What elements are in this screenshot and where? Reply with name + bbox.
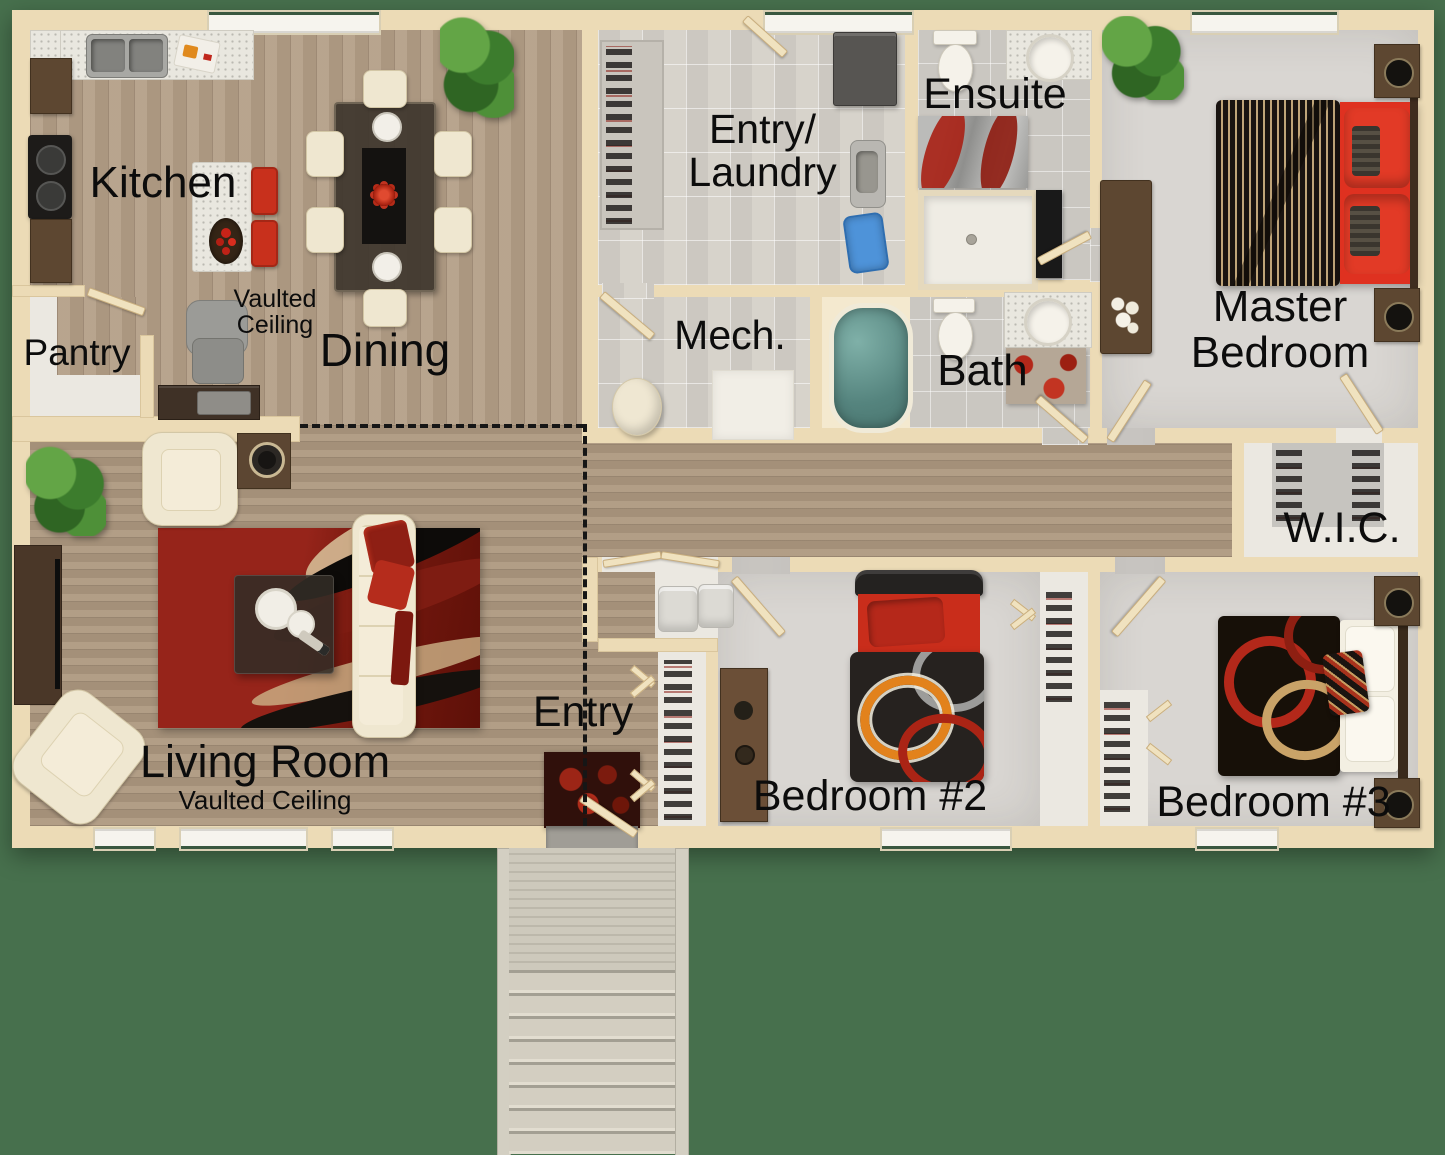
tv-console <box>14 545 62 705</box>
accent-pillow-1 <box>1352 126 1380 176</box>
master-label-line2: Bedroom <box>1191 328 1370 377</box>
bed2-dresser-knob-2 <box>735 745 755 765</box>
armchair-north-cushion <box>161 449 221 511</box>
fruit-bowl <box>209 218 243 264</box>
stairs-steps <box>509 970 675 1154</box>
laundry-basket <box>842 211 890 274</box>
entry-rug <box>544 752 640 828</box>
stairs-landing <box>509 848 675 970</box>
plate-south <box>372 252 402 282</box>
shower-drain <box>966 234 977 245</box>
bed3-nightstand-north <box>1374 576 1420 626</box>
kitchen-label: Kitchen <box>58 160 268 206</box>
bedroom3-door-opening <box>1115 557 1165 574</box>
dresser-flowers <box>1107 289 1143 339</box>
dining-chair-east-1 <box>434 131 472 177</box>
nightstand-lamp-north <box>1384 58 1414 88</box>
living-plant <box>26 446 106 536</box>
living-window-2 <box>179 827 308 851</box>
master-bed-red-linens <box>1340 102 1416 284</box>
master-headboard <box>1410 98 1418 288</box>
ensuite-rug-red-2 <box>973 116 1024 188</box>
living-window-3 <box>331 827 394 851</box>
dining-chair-east-2 <box>434 207 472 253</box>
master-bedroom-label: Master Bedroom <box>1150 284 1410 376</box>
towel-stack-2 <box>698 584 734 628</box>
bed2-headboard <box>855 570 983 596</box>
master-plant <box>1102 16 1184 100</box>
dining-plant <box>440 14 514 118</box>
mech-label: Mech. <box>645 314 815 357</box>
entry-closet-shoes <box>664 660 692 820</box>
bedroom3-label: Bedroom #3 <box>1136 780 1411 825</box>
sofa <box>352 514 416 738</box>
pantry-label: Pantry <box>18 334 136 373</box>
kitchen-cabinet-upper <box>30 58 72 114</box>
speaker-icon <box>249 442 285 478</box>
kitchen-cabinet-lower <box>30 219 72 283</box>
master-label-line1: Master <box>1213 282 1347 331</box>
dining-chair-west-2 <box>306 207 344 253</box>
wic-label: W.I.C. <box>1252 506 1432 551</box>
hallway-floor <box>582 443 1232 557</box>
living-room-note: Vaulted Ceiling <box>135 787 395 814</box>
bed2-pillow <box>866 596 945 647</box>
master-dresser <box>1100 180 1152 354</box>
plate-north <box>372 112 402 142</box>
bed3-headboard <box>1398 612 1408 780</box>
armchair-south-cushion <box>37 709 128 801</box>
coffee-table <box>234 575 334 674</box>
armchair-north <box>142 432 238 526</box>
dining-chair-north <box>363 70 407 108</box>
bed3-closet-shoes <box>1104 700 1130 812</box>
furnace-pad <box>712 370 794 440</box>
centerpiece-flowers <box>373 184 395 206</box>
dining-chair-west-1 <box>306 131 344 177</box>
living-room-label: Living Room <box>135 738 395 785</box>
laundry-closet-shoes <box>606 46 632 224</box>
ensuite-toilet-tank <box>933 30 977 45</box>
desk <box>158 385 260 420</box>
towel-stack-1 <box>658 586 698 632</box>
tv-remote <box>297 629 331 657</box>
fruit <box>221 228 231 238</box>
duvet-fold <box>1228 100 1334 286</box>
bed2-dresser-knob-1 <box>734 701 753 720</box>
island-stool-2 <box>251 220 278 267</box>
tv-screen <box>55 559 60 689</box>
ensuite-rug <box>918 116 1028 188</box>
washer <box>833 32 897 106</box>
dining-table <box>334 102 436 292</box>
floor-plan-scene: Kitchen Vaulted Ceiling Dining Pantry Li… <box>0 0 1445 1155</box>
bedroom2-label: Bedroom #2 <box>735 774 1005 819</box>
linen-closet-bottom-wall <box>598 638 718 652</box>
bed2-closet-shoes <box>1046 590 1072 702</box>
dining-label: Dining <box>295 326 475 374</box>
entry-label: Entry <box>518 690 648 735</box>
food-items <box>182 44 198 59</box>
entry-laundry-line1: Entry/ <box>709 106 816 152</box>
bath-sink <box>1024 298 1072 346</box>
stairs-rail-right <box>675 848 689 1155</box>
bed2-duvet <box>850 652 984 782</box>
dining-chair-south <box>363 289 407 327</box>
sofa-throw <box>390 610 413 685</box>
vaulted-ceiling-line-vertical <box>583 424 587 826</box>
kitchen-sink <box>86 34 168 78</box>
living-window-1 <box>93 827 156 851</box>
master-window <box>1190 10 1339 35</box>
master-nightstand-north <box>1374 44 1420 98</box>
bath-toilet-tank <box>933 298 975 313</box>
bedroom3-window <box>1195 827 1279 851</box>
entry-laundry-label: Entry/ Laundry <box>655 108 870 194</box>
vaulted-ceiling-line-horizontal <box>300 424 584 428</box>
bed3-duvet <box>1218 616 1340 776</box>
desk-chair-seat <box>192 338 244 384</box>
speaker-cabinet <box>237 433 291 489</box>
accent-pillow-2 <box>1350 206 1380 256</box>
bath-label: Bath <box>905 348 1060 394</box>
sink-basin-right <box>129 39 163 72</box>
water-tank <box>612 378 662 436</box>
stairs <box>497 848 687 1154</box>
dining-note-line1: Vaulted <box>234 285 317 313</box>
bed2-sheet <box>858 594 980 654</box>
bedroom2-window <box>880 827 1012 851</box>
bathtub <box>829 303 913 433</box>
bedroom2-door-opening <box>732 557 790 574</box>
bed3-lamp-north <box>1384 588 1414 618</box>
laptop <box>197 391 251 415</box>
pantry-top-wall <box>12 285 85 297</box>
sink-basin-left <box>91 39 125 72</box>
ensuite-rug-red-1 <box>918 116 974 188</box>
ensuite-label: Ensuite <box>900 72 1090 117</box>
shower <box>918 190 1038 290</box>
bed3-accent-pillow <box>1322 650 1370 717</box>
pantry-side-wall <box>140 335 154 418</box>
entry-laundry-line2: Laundry <box>688 149 836 195</box>
master-bed-duvet <box>1216 100 1340 286</box>
